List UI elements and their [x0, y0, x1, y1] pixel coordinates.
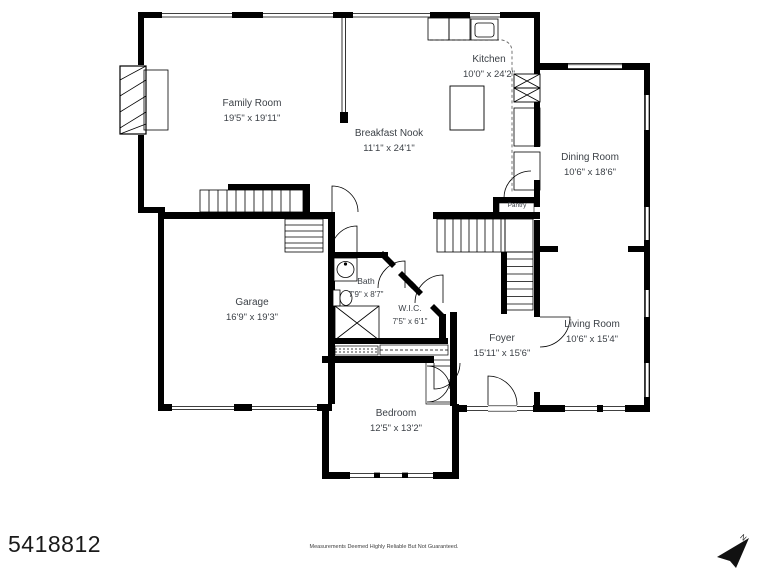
floorplan-drawing: N [0, 0, 768, 576]
window [645, 290, 649, 317]
room-dims: 10'6" x 15'4" [564, 335, 620, 346]
room-label-kitchen: Kitchen 10'0" x 24'2" [463, 54, 515, 80]
window [467, 406, 488, 410]
room-name: Breakfast Nook [355, 128, 423, 140]
room-label-foyer: Foyer 15'11" x 15'6" [474, 333, 531, 359]
north-arrow-icon: N [717, 532, 749, 568]
room-name: W.I.C. [393, 304, 428, 314]
bedroom-closet [380, 345, 448, 355]
room-label-family-room: Family Room 19'5" x 19'11" [223, 98, 282, 124]
room-label-pantry: Pantry [508, 202, 527, 209]
room-label-wic: W.I.C. 7'5" x 6'1" [393, 304, 428, 326]
room-label-garage: Garage 16'9" x 19'3" [226, 297, 278, 323]
room-label-bedroom: Bedroom 12'5" x 13'2" [370, 408, 422, 434]
stairs-foyer [437, 219, 533, 310]
room-dims: 7'5" x 6'1" [393, 317, 428, 326]
floorplan-canvas: N Family Room 19'5" x 19'11" Kitchen 10'… [0, 0, 768, 576]
disclaimer-text: Measurements Deemed Highly Reliable But … [0, 544, 768, 550]
room-label-bath: Bath 7'9" x 8'7" [349, 277, 384, 299]
door-arc [427, 379, 450, 402]
room-dims: 16'9" x 19'3" [226, 313, 278, 324]
window [263, 13, 333, 17]
stairs-main [200, 190, 303, 212]
window [350, 473, 433, 478]
window [603, 406, 625, 410]
foyer-closet [426, 360, 451, 404]
window [517, 406, 533, 410]
room-label-breakfast-nook: Breakfast Nook 11'1" x 24'1" [355, 128, 423, 154]
room-dims: 12'5" x 13'2" [370, 424, 422, 435]
stairs-basement [285, 219, 323, 252]
room-dims: 10'6" x 18'6" [561, 168, 619, 179]
window [162, 13, 232, 17]
stove-icon [514, 74, 540, 102]
window [353, 13, 430, 17]
garage-stoop [335, 346, 378, 355]
half-wall [342, 18, 346, 112]
kitchen-island [450, 86, 484, 130]
window [568, 64, 622, 69]
room-name: Living Room [564, 319, 620, 331]
window [645, 95, 649, 130]
room-name: Foyer [474, 333, 531, 345]
room-name: Kitchen [463, 54, 515, 66]
kitchen-sink-icon [471, 19, 498, 40]
room-dims: 19'5" x 19'11" [223, 114, 282, 125]
window [470, 13, 500, 17]
room-name: Pantry [508, 202, 527, 209]
door-arc [332, 186, 358, 212]
room-dims: 7'9" x 8'7" [349, 290, 384, 299]
room-name: Garage [226, 297, 278, 309]
room-dims: 11'1" x 24'1" [355, 144, 423, 155]
front-door-threshold [488, 405, 517, 412]
room-name: Bedroom [370, 408, 422, 420]
fireplace-icon [120, 66, 168, 134]
window [645, 363, 649, 397]
room-label-dining-room: Dining Room 10'6" x 18'6" [561, 152, 619, 178]
room-name: Dining Room [561, 152, 619, 164]
window [645, 207, 649, 240]
room-name: Family Room [223, 98, 282, 110]
room-label-living-room: Living Room 10'6" x 15'4" [564, 319, 620, 345]
window [565, 406, 597, 410]
wic-x-box [335, 306, 379, 340]
room-name: Bath [349, 277, 384, 287]
door-arc [504, 171, 531, 198]
room-dims: 10'0" x 24'2" [463, 70, 515, 81]
room-dims: 15'11" x 15'6" [474, 349, 531, 360]
garage-door [172, 404, 317, 411]
door-arc [488, 376, 517, 405]
